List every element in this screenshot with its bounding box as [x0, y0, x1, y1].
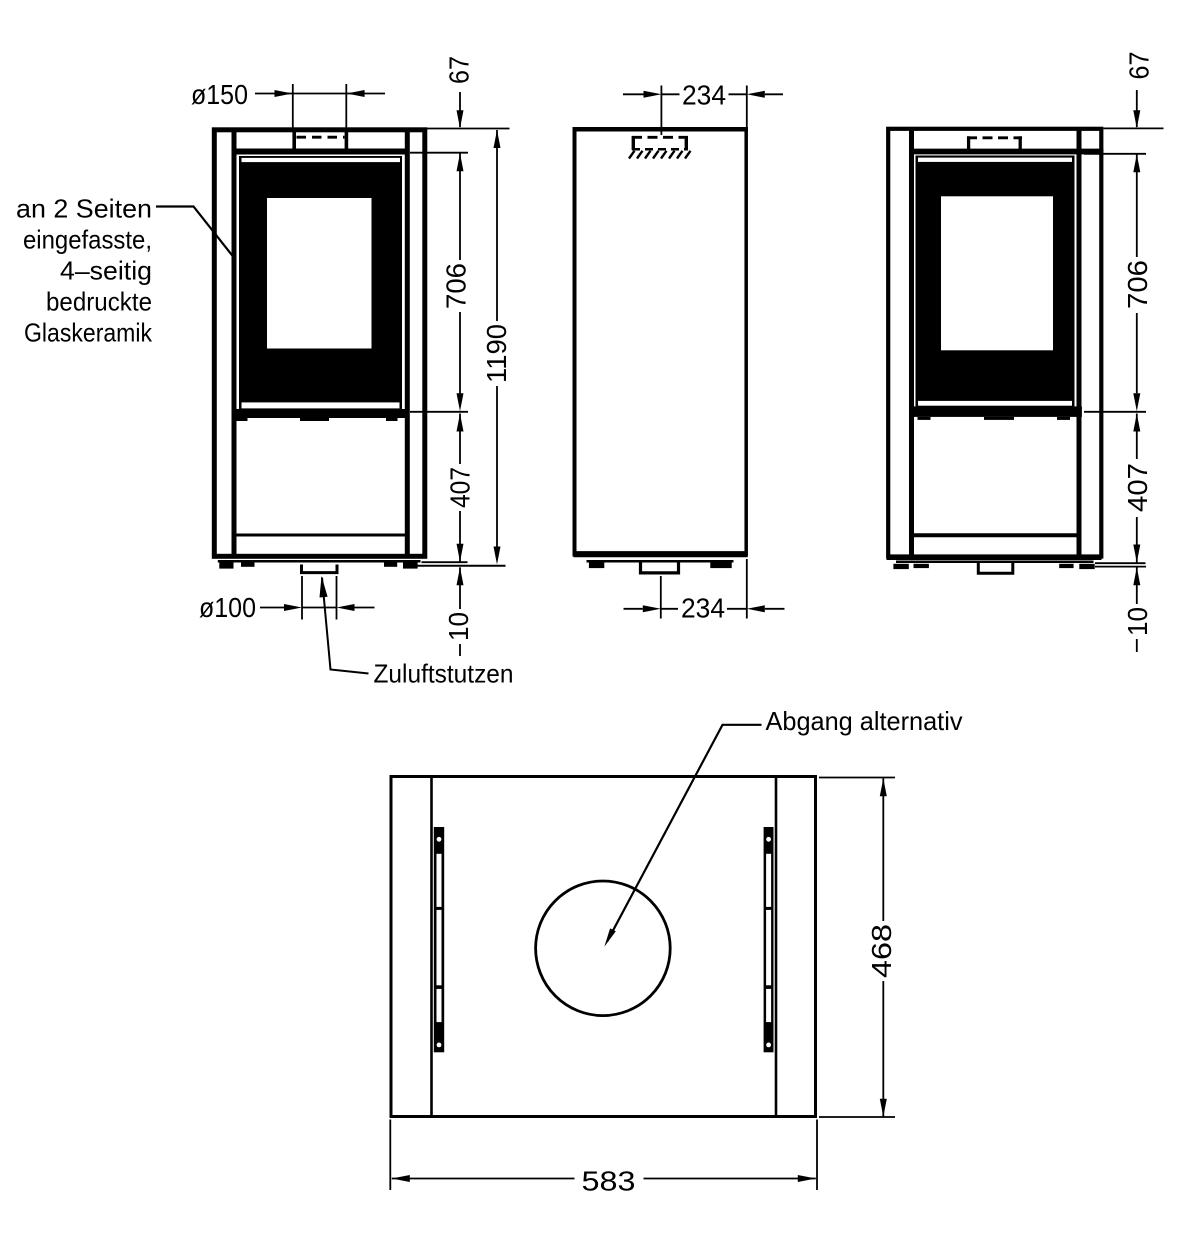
svg-text:eingefasste,: eingefasste,	[23, 225, 152, 255]
svg-text:407: 407	[1122, 463, 1153, 512]
svg-text:706: 706	[441, 263, 472, 309]
svg-text:583: 583	[582, 1166, 636, 1197]
svg-text:234: 234	[681, 593, 725, 624]
svg-text:Zuluftstutzen: Zuluftstutzen	[374, 659, 514, 689]
svg-text:468: 468	[866, 924, 897, 978]
svg-text:234: 234	[682, 80, 726, 111]
svg-text:407: 407	[445, 467, 476, 508]
svg-text:Glaskeramik: Glaskeramik	[24, 318, 153, 348]
svg-text:67: 67	[1124, 52, 1155, 80]
svg-text:4–seitig: 4–seitig	[60, 256, 152, 286]
svg-text:an 2 Seiten: an 2 Seiten	[16, 194, 152, 224]
svg-text:67: 67	[443, 56, 474, 84]
svg-text:1190: 1190	[481, 324, 512, 383]
svg-text:706: 706	[1122, 260, 1153, 309]
svg-text:ø150: ø150	[191, 79, 248, 110]
svg-text:10: 10	[443, 612, 474, 641]
svg-text:ø100: ø100	[199, 592, 256, 623]
svg-text:bedruckte: bedruckte	[46, 287, 152, 317]
svg-text:10: 10	[1122, 607, 1153, 636]
svg-text:Abgang alternativ: Abgang alternativ	[766, 706, 963, 736]
